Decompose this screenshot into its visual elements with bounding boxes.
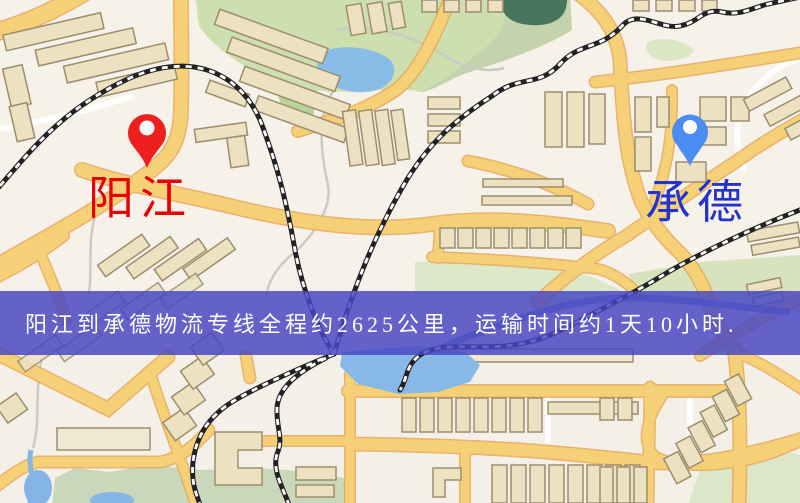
route-info-text: 阳江到承德物流专线全程约2625公里，运输时间约1天10小时.: [25, 307, 738, 339]
destination-city-label: 承德: [645, 180, 749, 226]
route-info-banner: 阳江到承德物流专线全程约2625公里，运输时间约1天10小时.: [0, 291, 800, 355]
origin-city-label: 阳江: [88, 176, 192, 222]
logistics-map-image: 阳江 承德 阳江到承德物流专线全程约2625公里，运输时间约1天10小时.: [0, 0, 800, 503]
map-canvas: [0, 0, 800, 503]
